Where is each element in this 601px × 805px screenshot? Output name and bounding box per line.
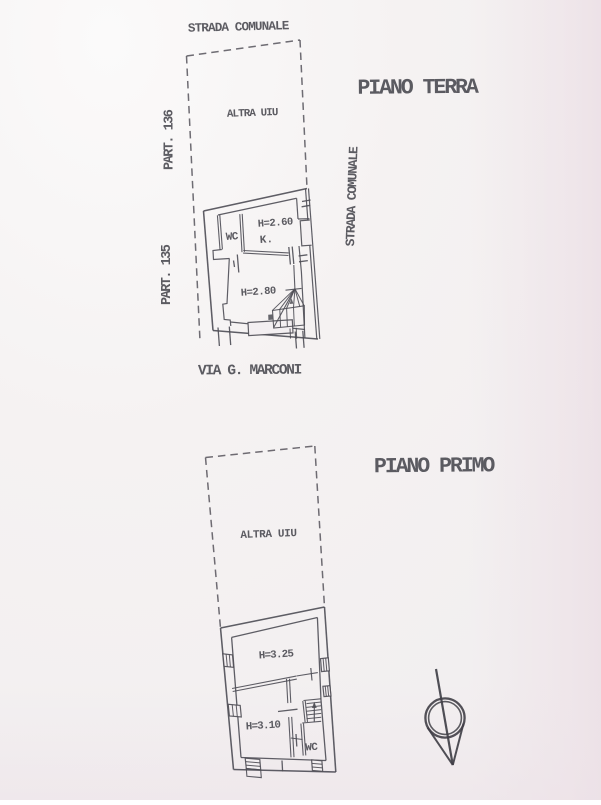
svg-text:H=3.10: H=3.10 bbox=[246, 719, 281, 733]
svg-text:ALTRA UIU: ALTRA UIU bbox=[240, 528, 297, 542]
svg-text:WC: WC bbox=[305, 742, 319, 755]
svg-text:H=2.80: H=2.80 bbox=[240, 285, 276, 299]
svg-text:H=3.25: H=3.25 bbox=[259, 648, 294, 662]
svg-text:VIA G. MARCONI: VIA G. MARCONI bbox=[198, 363, 302, 380]
svg-text:PART. 136: PART. 136 bbox=[163, 109, 178, 170]
svg-text:STRADA COMUNALE: STRADA COMUNALE bbox=[188, 19, 290, 36]
svg-text:PART. 135: PART. 135 bbox=[160, 244, 175, 305]
svg-text:H=2.60: H=2.60 bbox=[257, 216, 293, 230]
svg-text:K.: K. bbox=[259, 234, 273, 247]
svg-text:WC: WC bbox=[225, 231, 239, 244]
svg-text:PIANO TERRA: PIANO TERRA bbox=[357, 76, 479, 101]
svg-text:PIANO PRIMO: PIANO PRIMO bbox=[374, 454, 496, 479]
svg-text:ALTRA UIU: ALTRA UIU bbox=[227, 107, 278, 121]
